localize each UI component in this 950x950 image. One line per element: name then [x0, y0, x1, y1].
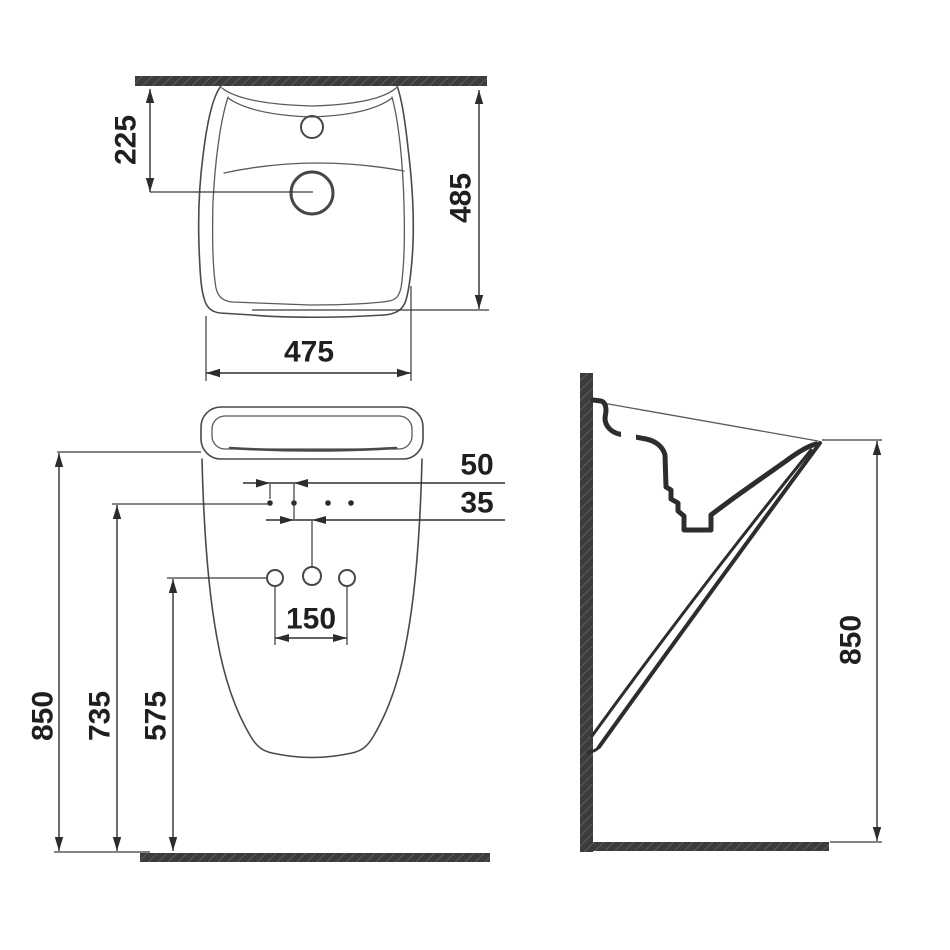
floor-section-bar-front: [140, 853, 490, 862]
dim-850-front-label: 850: [27, 691, 60, 741]
basin-outer-outline: [199, 86, 414, 317]
wall-section-bar: [135, 76, 487, 86]
top-view: 225 485 475: [110, 76, 490, 381]
dim-850-side-label: 850: [835, 615, 868, 665]
floor-section-bar-side: [585, 842, 829, 851]
dim-150-label: 150: [286, 603, 336, 636]
dim-485-label: 485: [445, 173, 478, 223]
outlet-hole-center: [303, 567, 321, 585]
washbasin-technical-drawing: 225 485 475 50 35: [0, 0, 950, 950]
dim-225-label: 225: [110, 115, 143, 165]
front-view: 50 35 150 850 735 575: [27, 407, 506, 862]
fixing-hole-dot-4: [348, 500, 354, 506]
drawing-canvas: 225 485 475 50 35: [0, 0, 950, 950]
dim-50-label: 50: [460, 449, 493, 482]
basin-inner-outline: [213, 97, 405, 305]
tap-hole: [301, 116, 323, 138]
fixing-hole-dot-1: [267, 500, 273, 506]
wall-section-bar-side: [580, 373, 593, 852]
rim-inner: [212, 416, 412, 449]
outlet-hole-left: [267, 570, 283, 586]
dim-35-arrow-left: [280, 516, 294, 524]
outlet-hole-right: [339, 570, 355, 586]
dim-35-arrow-right: [312, 516, 326, 524]
apron-inner-line: [592, 450, 811, 736]
fixing-slot: [621, 431, 636, 440]
dim-475-label: 475: [284, 336, 334, 369]
dim-35-label: 35: [460, 487, 493, 520]
back-rim-line-outer: [222, 88, 396, 106]
fixing-hole-dot-3: [325, 500, 331, 506]
apron-outer-line: [599, 443, 820, 747]
drain-hole: [291, 172, 333, 214]
dim-50-arrow-left: [256, 479, 270, 488]
dim-735-label: 735: [84, 691, 117, 741]
dim-575-label: 575: [140, 691, 173, 741]
basin-section-profile: [593, 400, 816, 530]
dim-50-arrow-right: [294, 479, 308, 488]
side-view: 850: [580, 373, 882, 852]
